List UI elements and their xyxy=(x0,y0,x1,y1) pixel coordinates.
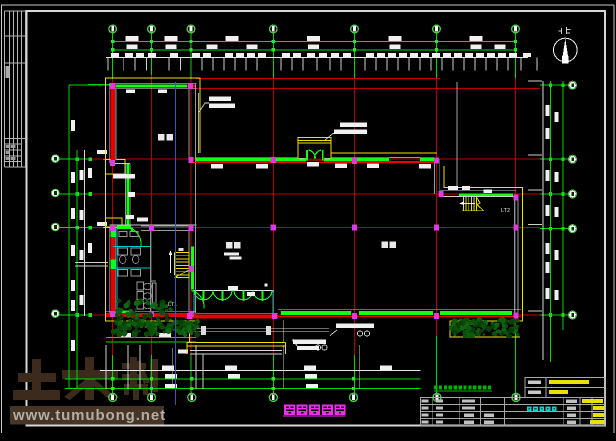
svg-text:www.tumubong.net: www.tumubong.net xyxy=(12,407,166,424)
svg-text:LT2: LT2 xyxy=(501,208,510,214)
